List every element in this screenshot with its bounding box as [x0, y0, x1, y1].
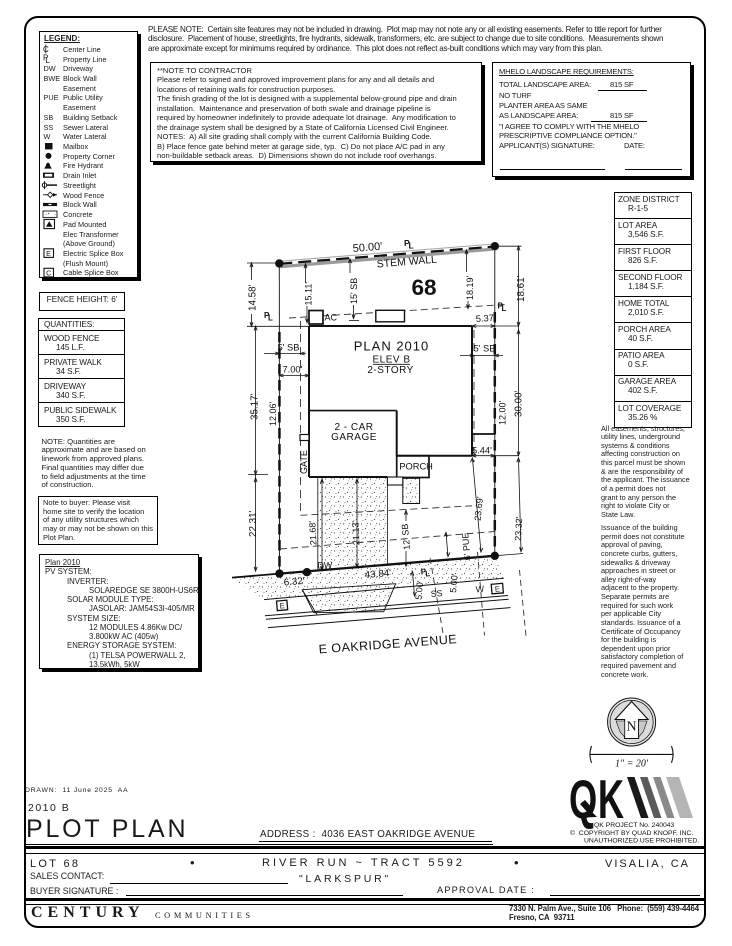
svg-text:5.37': 5.37' [475, 313, 496, 324]
svg-text:14.58': 14.58' [248, 284, 259, 311]
svg-text:W: W [475, 584, 485, 595]
svg-text:23.69': 23.69' [473, 496, 486, 521]
svg-text:22.31': 22.31' [248, 510, 259, 537]
svg-text:E OAKRIDGE AVENUE: E OAKRIDGE AVENUE [318, 632, 457, 656]
svg-text:50.00': 50.00' [352, 241, 383, 255]
svg-text:© COPYRIGHT BY QUAD KNOPF, IN: © COPYRIGHT BY QUAD KNOPF, INC. [570, 829, 693, 837]
svg-text:PORCH: PORCH [399, 461, 433, 471]
svg-text:21.13': 21.13' [350, 520, 361, 545]
svg-text:5' SB: 5' SB [474, 344, 496, 354]
svg-text:GATE: GATE [299, 450, 309, 474]
svg-text:E: E [494, 584, 500, 593]
svg-text:21.68': 21.68' [307, 520, 318, 545]
svg-text:15' SB: 15' SB [349, 278, 359, 304]
svg-text:30.00': 30.00' [514, 390, 525, 417]
svg-text:L: L [502, 304, 507, 313]
svg-text:5.44': 5.44' [472, 446, 492, 456]
svg-text:E: E [46, 251, 51, 258]
svg-text:L: L [409, 241, 414, 251]
svg-text:2-STORY: 2-STORY [367, 365, 413, 376]
svg-text:12.00': 12.00' [498, 400, 508, 425]
svg-text:N: N [627, 720, 637, 735]
svg-text:6.32': 6.32' [283, 576, 305, 589]
svg-text:12' SB: 12' SB [400, 523, 412, 550]
svg-text:5.00': 5.00' [448, 573, 460, 593]
svg-text:GARAGE: GARAGE [331, 432, 377, 443]
svg-text:L: L [46, 56, 51, 65]
svg-text:C: C [46, 270, 51, 277]
svg-text:QK: QK [569, 768, 625, 829]
svg-text:UNAUTHORIZED USE PROHIBITED.: UNAUTHORIZED USE PROHIBITED. [584, 837, 699, 844]
svg-text:7.00': 7.00' [283, 365, 303, 375]
svg-text:SS: SS [430, 588, 443, 599]
svg-text:35.17': 35.17' [250, 393, 261, 420]
svg-text:DW: DW [318, 561, 333, 571]
svg-text:AC: AC [325, 313, 338, 323]
svg-text:18.19': 18.19' [465, 275, 475, 300]
svg-text:43.84': 43.84' [364, 568, 391, 581]
svg-text:E: E [279, 601, 285, 610]
svg-text:PLAN 2010: PLAN 2010 [354, 339, 430, 354]
svg-text:5.00': 5.00' [414, 580, 426, 600]
svg-text:68: 68 [412, 275, 437, 300]
svg-text:ELEV B: ELEV B [372, 355, 410, 366]
svg-text:L: L [268, 314, 273, 323]
svg-text:23.32': 23.32' [513, 516, 524, 541]
svg-text:18.61': 18.61' [516, 275, 527, 302]
svg-text:L: L [425, 569, 431, 578]
svg-text:6' PUE: 6' PUE [460, 532, 472, 561]
svg-text:5' SB: 5' SB [278, 343, 300, 353]
svg-text:15.11': 15.11' [304, 282, 314, 306]
svg-text:12.06': 12.06' [268, 401, 278, 426]
svg-text:QK PROJECT No. 240043: QK PROJECT No. 240043 [594, 822, 675, 829]
